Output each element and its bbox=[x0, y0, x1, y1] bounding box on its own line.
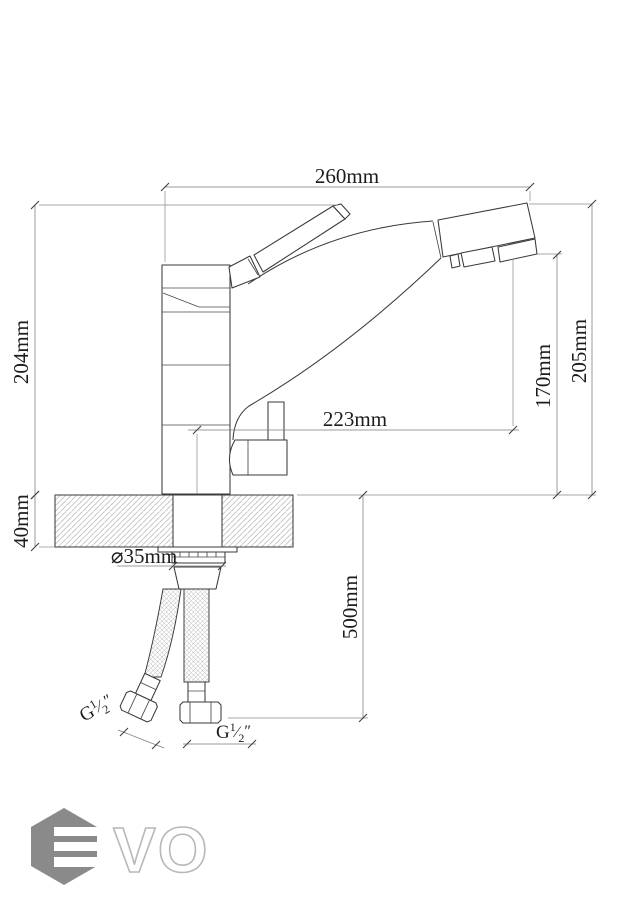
thread-label-bottom: G1⁄2″ bbox=[216, 720, 251, 745]
supply-hoses bbox=[119, 589, 221, 723]
logo-e-slot bbox=[54, 827, 106, 836]
handle-base bbox=[229, 256, 260, 288]
dim-40-label: 40mm bbox=[9, 494, 33, 548]
hose-angled-end bbox=[119, 670, 168, 723]
dim-205-label: 205mm bbox=[567, 319, 591, 383]
aerator-tab bbox=[450, 254, 460, 268]
dim-170: 170mm bbox=[531, 251, 562, 499]
hose-nut-vertical bbox=[180, 702, 221, 723]
dim-204-label: 204mm bbox=[9, 320, 33, 384]
logo-outline-letters: VO bbox=[113, 814, 209, 886]
dim-170-label: 170mm bbox=[531, 344, 555, 408]
counter-hatch-right bbox=[222, 495, 293, 547]
faucet-body bbox=[162, 265, 230, 494]
handle-lever bbox=[254, 206, 345, 272]
dim-dia35-label: ⌀35mm bbox=[111, 544, 177, 568]
faucet-drawing bbox=[55, 203, 537, 723]
side-outlet bbox=[229, 402, 287, 475]
hose-angled bbox=[144, 589, 181, 677]
outlet-block bbox=[229, 440, 287, 475]
body-outline bbox=[162, 265, 230, 494]
hose-fitting-vertical bbox=[188, 682, 205, 702]
dim-40: 40mm bbox=[9, 491, 55, 551]
dim-500-label: 500mm bbox=[338, 575, 362, 639]
faucet-handle bbox=[229, 204, 350, 288]
faucet-dimension-drawing: 260mm 204mm 40mm 205mm 170mm bbox=[0, 0, 637, 900]
hose-vertical bbox=[184, 589, 209, 682]
dim-223-label: 223mm bbox=[323, 407, 387, 431]
dim-thread-bottom: G1⁄2″ bbox=[183, 720, 256, 748]
thread-label-left: G1⁄2″ bbox=[75, 689, 118, 728]
logo-e-slot bbox=[54, 857, 106, 867]
outlet-pipe bbox=[268, 402, 284, 440]
technical-drawing-page: 260mm 204mm 40mm 205mm 170mm bbox=[0, 0, 637, 900]
logo-e-slot bbox=[54, 842, 106, 851]
countertop bbox=[55, 495, 293, 547]
counter-hatch-left bbox=[55, 495, 173, 547]
shank-connector bbox=[174, 567, 221, 589]
dim-260-label: 260mm bbox=[315, 164, 379, 188]
evo-logo: VO bbox=[31, 808, 209, 886]
spout-head bbox=[438, 203, 537, 268]
